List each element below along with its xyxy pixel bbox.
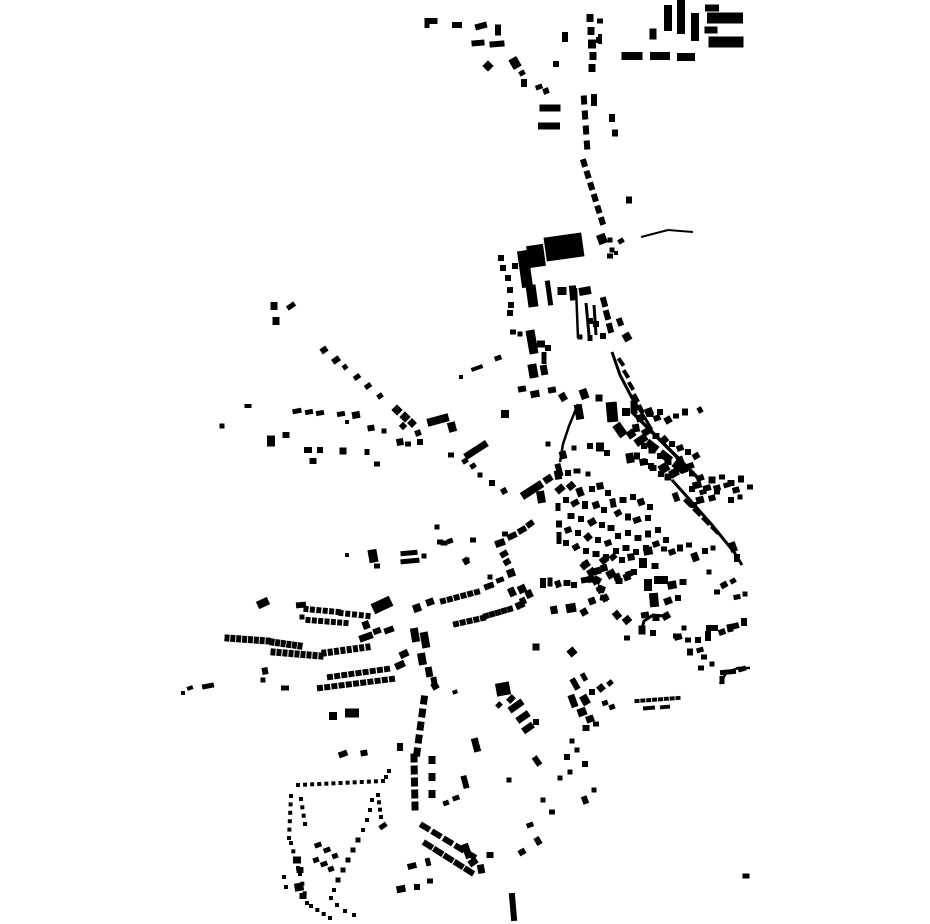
terrace-row-segment <box>324 684 331 691</box>
boundary-dot <box>298 872 302 876</box>
building-footprint <box>345 420 349 424</box>
building-footprint <box>412 603 422 613</box>
building-footprint <box>719 475 725 480</box>
building-footprint <box>595 537 601 543</box>
boundary-dot <box>381 779 385 783</box>
terrace-row-segment <box>389 676 396 683</box>
building-footprint <box>452 22 462 28</box>
building-footprint <box>382 429 387 434</box>
building-footprint <box>632 423 640 432</box>
building-footprint <box>590 52 597 60</box>
building-footprint <box>637 498 646 507</box>
building-footprint <box>714 490 720 495</box>
boundary-dot <box>379 815 383 819</box>
terrace-row-segment <box>446 596 453 603</box>
building-footprint <box>606 322 614 333</box>
boundary-dot <box>361 828 365 832</box>
building-footprint <box>625 452 635 463</box>
building-footprint <box>614 251 618 255</box>
building-footprint <box>596 482 604 490</box>
building-footprint <box>615 533 621 539</box>
terrace-row-segment <box>374 677 381 684</box>
building-footprint <box>689 486 695 492</box>
boundary-dot <box>365 818 369 822</box>
building-footprint <box>601 700 608 707</box>
building-footprint <box>367 549 378 563</box>
building-footprint <box>743 874 750 879</box>
building-footprint <box>558 776 563 781</box>
building-footprint <box>507 287 513 293</box>
building-footprint <box>397 743 403 751</box>
building-footprint <box>507 778 512 783</box>
boundary-dot <box>300 805 304 809</box>
building-footprint <box>304 447 312 453</box>
building-footprint <box>673 414 679 419</box>
building-footprint <box>608 238 613 243</box>
building-footprint <box>575 748 580 753</box>
building-footprint <box>578 516 584 522</box>
building-footprint <box>256 597 270 609</box>
building-footprint <box>654 576 668 584</box>
terrace-row-segment <box>324 618 329 624</box>
terrace-row-segment <box>345 610 351 617</box>
terrace-row-segment <box>453 594 460 601</box>
terrace-row-segment <box>452 620 459 627</box>
terrace-row-segment <box>316 607 322 613</box>
building-footprint <box>372 627 382 635</box>
building-footprint <box>538 123 560 130</box>
boundary-dot <box>310 782 314 786</box>
building-footprint <box>680 579 687 585</box>
building-footprint <box>707 13 743 24</box>
building-footprint <box>310 458 317 464</box>
building-footprint <box>508 302 514 308</box>
terrace-row-segment <box>254 636 259 643</box>
building-footprint <box>625 530 631 536</box>
terrace-row-segment <box>419 822 432 833</box>
terrace-row-segment <box>352 611 358 618</box>
terrace-row-segment <box>248 636 253 643</box>
terrace-row-segment <box>376 667 383 674</box>
boundary-dot <box>332 888 336 892</box>
building-footprint <box>312 857 319 864</box>
terrace-row-segment <box>352 645 358 653</box>
terrace-row-segment <box>473 616 480 623</box>
terrace-row-segment <box>318 618 323 624</box>
building-footprint <box>685 449 691 455</box>
building-footprint <box>495 576 504 583</box>
building-footprint <box>582 761 588 767</box>
boundary-dot <box>368 808 372 812</box>
boundary-dot <box>353 780 357 784</box>
terrace-row-segment <box>384 666 391 673</box>
building-footprint <box>626 197 632 204</box>
building-footprint <box>353 373 362 381</box>
building-footprint <box>512 263 518 269</box>
building-footprint <box>314 841 322 848</box>
terrace-row-segment <box>312 617 317 623</box>
building-footprint <box>567 694 578 709</box>
building-footprint <box>465 558 470 563</box>
boundary-dot <box>360 780 364 784</box>
building-footprint <box>553 61 559 67</box>
building-footprint <box>471 39 484 46</box>
building-footprint <box>474 22 487 31</box>
building-footprint <box>364 382 373 390</box>
building-footprint <box>682 626 687 631</box>
building-footprint <box>566 481 577 492</box>
building-footprint <box>650 630 656 636</box>
building-footprint <box>728 497 734 503</box>
building-footprint <box>699 489 707 496</box>
building-footprint <box>663 596 673 605</box>
building-footprint <box>500 265 506 271</box>
boundary-dot <box>341 868 346 873</box>
boundary-dot <box>289 841 293 845</box>
boundary-dot <box>303 822 307 826</box>
building-footprint <box>545 280 553 305</box>
boundary-dot <box>309 904 313 908</box>
building-footprint <box>609 114 615 122</box>
boundary-dot <box>387 769 391 773</box>
building-footprint <box>644 579 652 591</box>
building-footprint <box>417 652 427 665</box>
building-footprint <box>589 486 595 492</box>
terrace-row-segment <box>452 859 465 870</box>
building-footprint <box>707 570 712 575</box>
terrace-row-segment <box>360 679 367 686</box>
building-footprint <box>616 317 624 327</box>
building-footprint <box>400 550 417 556</box>
terrace-row-segment <box>353 680 360 687</box>
building-footprint <box>653 414 662 422</box>
building-footprint <box>202 682 215 689</box>
building-footprint <box>630 494 636 500</box>
road-line <box>594 305 596 335</box>
building-footprint <box>396 885 406 893</box>
building-footprint <box>317 447 323 453</box>
building-footprint <box>360 749 368 756</box>
terrace-row-segment <box>291 641 297 649</box>
building-footprint <box>548 578 553 587</box>
terrace-row-segment <box>365 643 371 651</box>
building-footprint <box>589 64 596 72</box>
building-footprint <box>300 615 305 620</box>
building-footprint <box>657 409 663 415</box>
terrace-row-segment <box>460 592 467 599</box>
boundary-dot <box>288 811 292 815</box>
terrace-row-segment <box>337 619 342 625</box>
boundary-dot <box>376 793 380 797</box>
boundary-dot <box>384 775 388 779</box>
terrace-row-segment <box>345 681 352 688</box>
building-footprint <box>600 333 606 339</box>
boundary-dot <box>289 794 293 798</box>
building-footprint <box>426 413 449 426</box>
boundary-dot <box>324 782 328 786</box>
building-footprint <box>663 415 673 425</box>
boundary-dot <box>328 916 332 920</box>
terrace-row-segment <box>640 698 645 702</box>
building-footprint <box>495 701 503 709</box>
building-footprint <box>600 296 608 307</box>
building-footprint <box>181 691 185 695</box>
terrace-row-segment <box>310 606 316 612</box>
building-footprint <box>672 492 681 503</box>
building-footprint <box>515 710 530 724</box>
building-footprint <box>605 490 611 496</box>
building-footprint <box>220 424 225 429</box>
building-footprint <box>582 501 588 509</box>
terrace-row-segment <box>369 668 376 675</box>
building-footprint <box>592 501 601 510</box>
terrace-row-segment <box>282 649 288 656</box>
building-footprint <box>664 5 672 31</box>
boundary-dot <box>299 797 303 801</box>
building-footprint <box>728 480 735 486</box>
building-footprint <box>525 519 535 529</box>
building-footprint <box>596 395 603 402</box>
terrace-row-segment <box>355 670 362 677</box>
building-footprint <box>495 25 501 36</box>
building-footprint <box>422 554 427 559</box>
building-footprint <box>542 87 550 95</box>
terrace-row-segment <box>348 671 355 678</box>
terrace-row-segment <box>297 642 303 650</box>
terrace-row-segment <box>583 125 590 134</box>
building-footprint <box>549 810 555 815</box>
building-footprint <box>729 577 737 584</box>
building-footprint <box>663 537 669 543</box>
building-footprint <box>583 548 589 554</box>
terrace-row-segment <box>584 170 592 179</box>
terrace-row-segment <box>305 617 310 623</box>
building-footprint <box>376 392 384 400</box>
building-footprint <box>643 705 655 710</box>
building-footprint <box>738 476 744 483</box>
terrace-row-segment <box>442 853 455 864</box>
building-footprint <box>690 552 700 563</box>
building-footprint <box>632 516 642 524</box>
building-footprint <box>533 719 539 725</box>
building-footprint <box>367 424 375 431</box>
terrace-row-segment <box>652 698 657 702</box>
terrace-row-segment <box>416 721 424 731</box>
building-footprint <box>596 443 604 452</box>
building-footprint <box>596 37 602 43</box>
boundary-dot <box>289 802 293 806</box>
building-footprint <box>427 879 433 884</box>
road-line <box>641 230 693 237</box>
terrace-row-segment <box>459 619 466 626</box>
terrace-row-segment <box>594 205 602 214</box>
building-footprint <box>609 498 616 508</box>
road-line <box>560 404 578 462</box>
building-footprint <box>685 638 691 643</box>
terrace-row-segment <box>463 866 476 877</box>
building-footprint <box>564 580 571 586</box>
building-footprint <box>405 442 411 447</box>
terrace-row-segment <box>411 789 418 798</box>
building-footprint <box>532 755 543 767</box>
building-footprint <box>327 866 334 873</box>
building-footprint <box>747 485 753 490</box>
building-footprint <box>399 422 407 430</box>
building-footprint <box>471 737 481 752</box>
building-footprint <box>316 410 325 416</box>
building-footprint <box>649 593 659 608</box>
terrace-row-segment <box>413 747 421 757</box>
building-footprint <box>329 712 337 720</box>
boundary-dot <box>317 782 321 786</box>
building-footprint <box>281 686 289 691</box>
building-footprint <box>658 471 664 477</box>
building-footprint <box>610 248 615 253</box>
building-footprint <box>587 517 597 527</box>
terrace-row-segment <box>584 140 591 149</box>
terrace-row-segment <box>306 651 312 658</box>
terrace-row-segment <box>327 674 334 681</box>
terrace-row-segment <box>334 647 340 655</box>
boundary-dot <box>282 875 286 879</box>
building-footprint <box>319 346 328 355</box>
building-footprint <box>597 19 603 24</box>
terrace-row-segment <box>581 95 588 104</box>
building-footprint <box>394 660 406 671</box>
terrace-row-segment <box>381 677 388 684</box>
building-footprint <box>521 722 535 735</box>
boundary-dot <box>322 912 326 916</box>
building-footprint <box>505 275 511 281</box>
building-footprint <box>506 568 516 578</box>
building-footprint <box>695 637 701 643</box>
terrace-row-segment <box>411 765 418 774</box>
building-footprint <box>563 497 569 503</box>
building-footprint <box>425 597 435 606</box>
building-footprint <box>686 543 692 548</box>
terrace-row-segment <box>275 639 281 647</box>
terrace-row-segment <box>432 846 445 857</box>
building-footprint <box>687 649 693 656</box>
building-footprint <box>587 443 593 449</box>
building-footprint <box>631 569 637 575</box>
boundary-dot <box>303 783 307 787</box>
building-footprint <box>292 408 302 414</box>
building-footprint <box>709 37 744 48</box>
building-footprint <box>565 603 576 614</box>
building-footprint <box>414 884 420 890</box>
terrace-row-segment <box>230 635 235 642</box>
building-footprint <box>583 725 590 731</box>
building-footprint <box>650 52 670 60</box>
building-footprint <box>525 329 538 354</box>
building-footprint <box>378 822 387 831</box>
building-footprint <box>691 13 699 41</box>
terrace-row-segment <box>488 611 495 618</box>
building-footprint <box>361 620 370 630</box>
building-footprint <box>741 618 747 626</box>
building-footprint <box>607 254 613 259</box>
building-footprint <box>425 18 438 24</box>
building-footprint <box>705 631 711 641</box>
building-footprint <box>592 788 597 793</box>
terrace-row-segment <box>429 790 436 798</box>
boundary-dot <box>288 819 292 823</box>
boundary-dot <box>352 913 356 917</box>
boundary-dot <box>370 798 374 802</box>
terrace-row-segment <box>242 636 247 643</box>
building-footprint <box>608 525 615 531</box>
building-footprint <box>477 864 485 874</box>
building-footprint <box>331 853 338 860</box>
building-footprint <box>719 581 728 590</box>
building-footprint <box>558 287 567 295</box>
building-footprint <box>606 679 614 687</box>
terrace-row-segment <box>358 612 364 619</box>
building-footprint <box>620 497 627 503</box>
building-footprint <box>596 683 606 693</box>
terrace-row-segment <box>420 695 428 705</box>
building-footprint <box>718 628 727 636</box>
terrace-row-segment <box>294 650 300 657</box>
building-footprint <box>627 553 635 561</box>
building-footprint <box>540 364 549 375</box>
building-footprint <box>708 494 716 502</box>
building-footprint <box>507 310 513 316</box>
building-footprint <box>617 237 625 244</box>
terrace-row-segment <box>411 777 418 786</box>
building-footprint <box>545 345 551 351</box>
terrace-row-segment <box>500 607 507 614</box>
building-footprint <box>271 302 278 310</box>
building-footprint <box>501 410 509 418</box>
building-footprint <box>498 255 504 261</box>
building-footprint <box>447 421 457 433</box>
building-footprint <box>665 474 672 481</box>
terrace-row-segment <box>430 829 443 840</box>
boundary-dot <box>300 882 304 886</box>
building-footprint <box>588 40 596 49</box>
building-footprint <box>286 301 296 310</box>
terrace-row-segment <box>580 158 588 167</box>
building-footprint <box>489 480 495 486</box>
building-footprint <box>342 364 349 371</box>
building-footprint <box>526 821 534 828</box>
boundary-dot <box>367 780 371 784</box>
building-footprint <box>518 69 526 76</box>
building-footprint <box>652 540 661 548</box>
building-footprint <box>643 546 653 555</box>
building-footprint <box>541 798 546 803</box>
terrace-row-segment <box>338 610 344 617</box>
building-footprint <box>586 472 591 477</box>
building-footprint <box>635 535 642 541</box>
building-footprint <box>738 495 743 500</box>
building-footprint <box>345 553 349 557</box>
building-footprint <box>639 558 647 568</box>
building-footprint <box>568 770 573 775</box>
building-footprint <box>471 364 484 372</box>
boundary-dot <box>296 783 300 787</box>
building-footprint <box>448 453 454 458</box>
building-footprint <box>540 105 561 112</box>
building-footprint <box>668 548 677 556</box>
boundary-dot <box>315 908 319 912</box>
building-footprint <box>470 538 476 543</box>
building-footprint <box>323 846 331 853</box>
building-footprint <box>645 515 651 521</box>
terrace-row-segment <box>280 640 286 648</box>
